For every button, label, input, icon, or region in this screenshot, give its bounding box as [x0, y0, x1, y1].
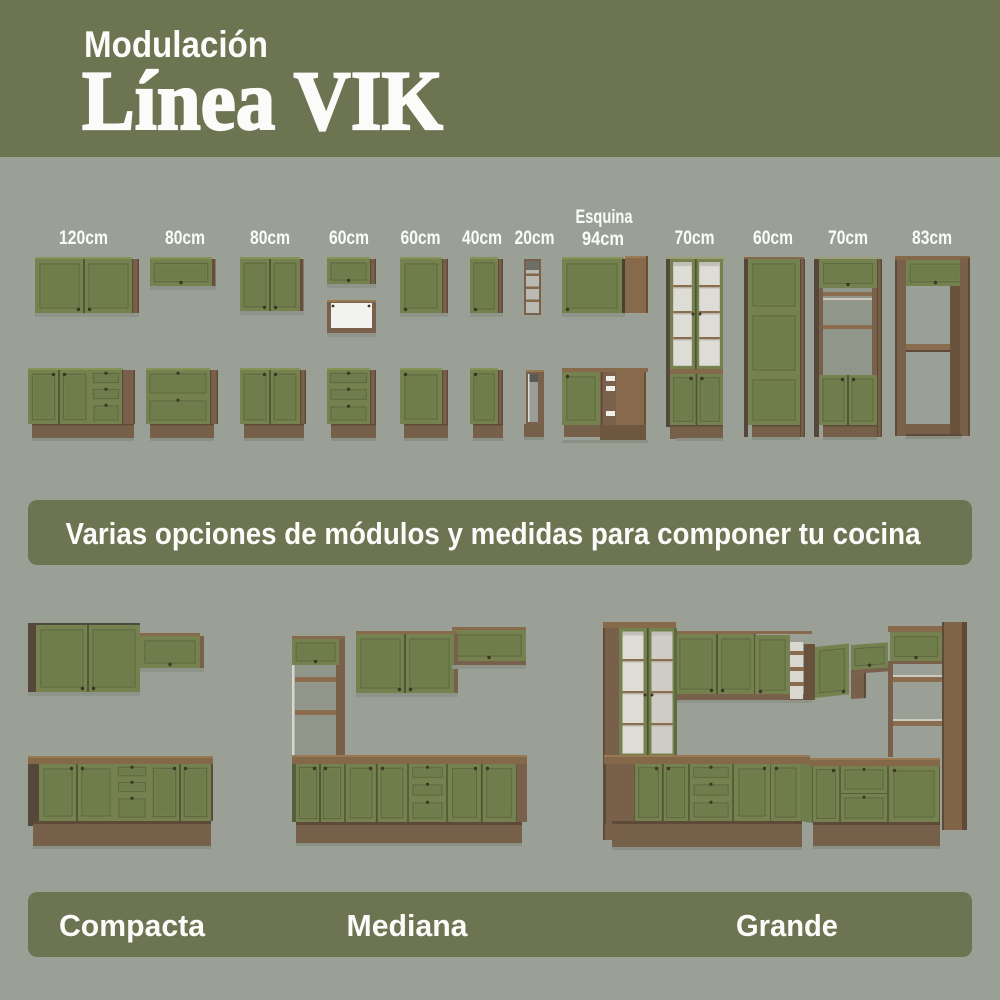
svg-text:Mediana: Mediana [347, 908, 469, 943]
svg-text:Grande: Grande [736, 908, 838, 943]
svg-text:80cm: 80cm [165, 227, 205, 249]
svg-text:60cm: 60cm [753, 227, 793, 249]
svg-text:60cm: 60cm [401, 227, 441, 249]
svg-text:94cm: 94cm [582, 228, 624, 250]
svg-text:70cm: 70cm [828, 227, 868, 249]
svg-text:120cm: 120cm [59, 227, 108, 249]
svg-text:Esquina: Esquina [576, 206, 633, 228]
svg-text:40cm: 40cm [462, 227, 502, 249]
svg-text:80cm: 80cm [250, 227, 290, 249]
svg-text:Varias opciones de módulos y m: Varias opciones de módulos y medidas par… [66, 516, 922, 551]
svg-text:Línea VIK: Línea VIK [82, 54, 443, 148]
svg-text:83cm: 83cm [912, 227, 952, 249]
svg-text:Compacta: Compacta [59, 908, 206, 943]
svg-text:20cm: 20cm [515, 227, 555, 249]
svg-text:70cm: 70cm [675, 227, 715, 249]
svg-text:60cm: 60cm [329, 227, 369, 249]
